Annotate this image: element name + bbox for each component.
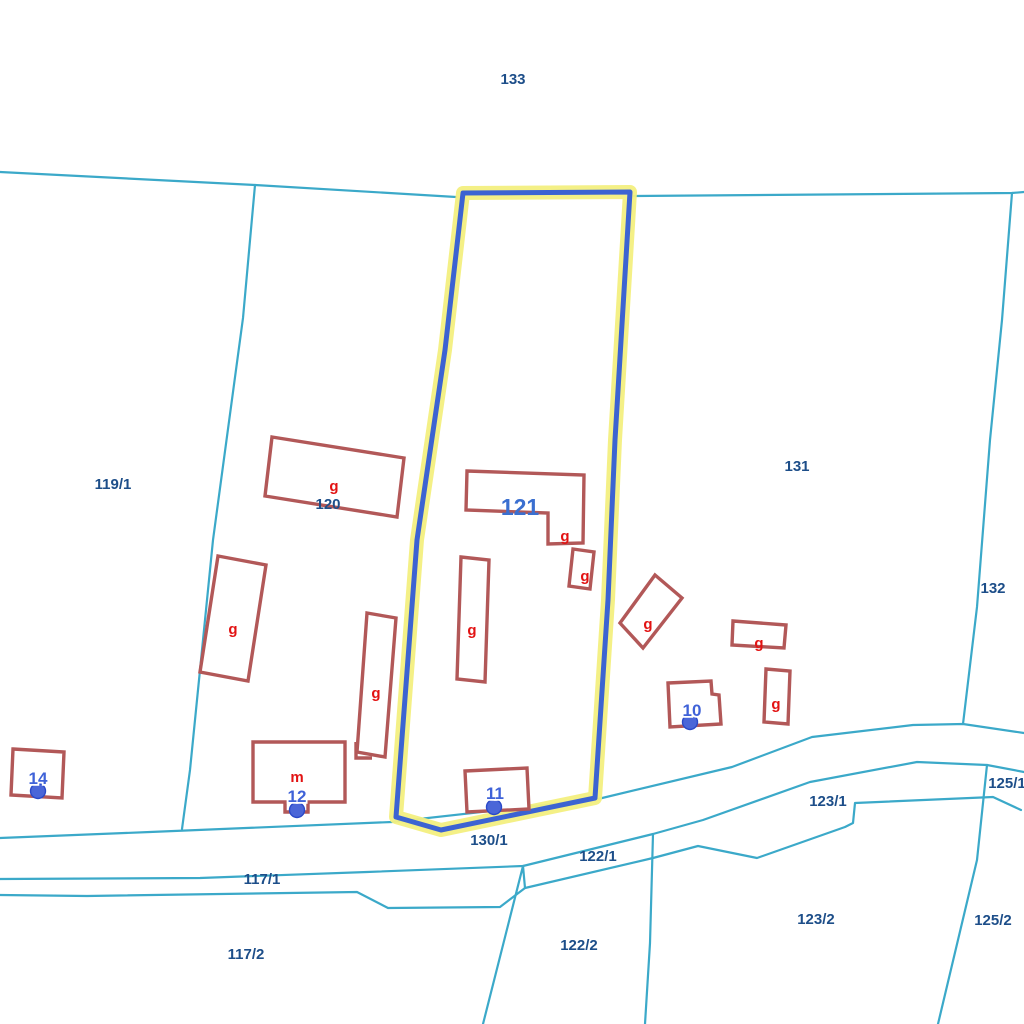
- parcel-label: 122/1: [579, 848, 617, 865]
- house-number-label: 11: [486, 784, 504, 803]
- building-letters: g g g g g g g g g m: [228, 478, 780, 786]
- building-letter: m: [290, 769, 303, 786]
- parcel-label: 123/1: [809, 793, 847, 810]
- building-letter: g: [371, 685, 380, 702]
- parcel-label: 117/1: [244, 871, 281, 888]
- parcel-label: 125/1: [988, 775, 1024, 792]
- building-outline: [457, 557, 489, 682]
- parcel-label: 133: [500, 71, 525, 88]
- house-number-label: 10: [683, 701, 702, 720]
- parcel-boundary-line: [645, 834, 653, 1024]
- parcel-label: 125/2: [974, 912, 1012, 929]
- parcel-boundary-line: [483, 866, 523, 1024]
- building-letter: g: [771, 696, 780, 713]
- building-letter: g: [228, 621, 237, 638]
- cadastral-map[interactable]: 133 119/1 120 131 132 130/1 117/1 117/2 …: [0, 0, 1024, 1024]
- selected-parcel-label: 121: [501, 494, 540, 520]
- building-letter: g: [329, 478, 338, 495]
- building-outline: [620, 575, 682, 648]
- building-letter: g: [754, 635, 763, 652]
- parcel-label: 122/2: [560, 937, 598, 954]
- building-letter: g: [560, 528, 569, 545]
- parcel-label: 130/1: [470, 832, 508, 849]
- building-letter: g: [643, 616, 652, 633]
- parcel-label: 123/2: [797, 911, 835, 928]
- parcel-label: 132: [980, 580, 1005, 597]
- parcel-boundary-line: [182, 185, 255, 829]
- parcel-boundaries: [0, 172, 1024, 1024]
- map-svg[interactable]: 133 119/1 120 131 132 130/1 117/1 117/2 …: [0, 0, 1024, 1024]
- building-letter: g: [580, 568, 589, 585]
- house-number-label: 14: [29, 769, 48, 788]
- parcel-label: 120: [315, 496, 340, 513]
- parcel-label: 119/1: [95, 476, 132, 493]
- building-letter: g: [467, 622, 476, 639]
- parcel-label: 131: [784, 458, 809, 475]
- parcel-boundary-line: [963, 193, 1012, 724]
- house-number-label: 12: [288, 787, 307, 806]
- parcel-label: 117/2: [228, 946, 265, 963]
- parcel-boundary-line: [0, 172, 456, 197]
- parcel-boundary-line: [938, 765, 987, 1024]
- parcel-boundary-line: [634, 192, 1024, 196]
- parcel-boundary-line: [523, 866, 525, 888]
